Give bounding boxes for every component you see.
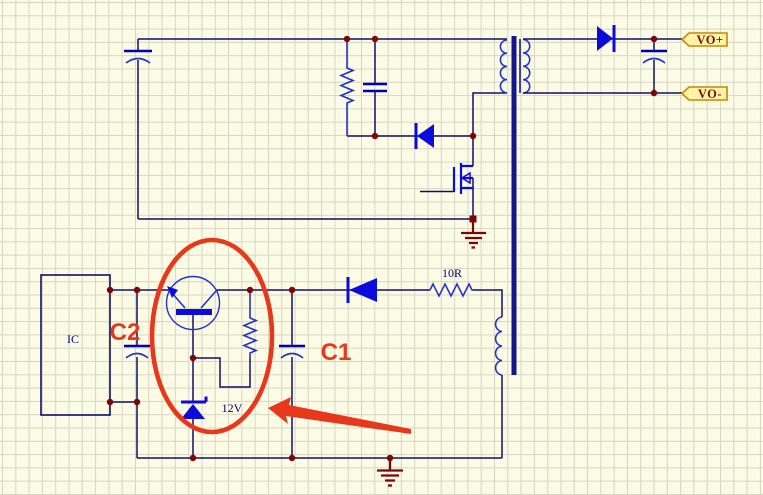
junction-dot bbox=[387, 455, 393, 461]
port-vo-minus-label: VO- bbox=[698, 87, 722, 101]
capacitor-c2 bbox=[124, 346, 150, 358]
port-vo-plus: VO+ bbox=[682, 33, 727, 47]
aux-ground-symbol bbox=[377, 458, 403, 486]
junction-dot bbox=[289, 455, 295, 461]
junction-dot bbox=[372, 36, 378, 42]
aux-resistor: 10R bbox=[430, 266, 473, 296]
junction-dot bbox=[651, 36, 657, 42]
annotation-c1-label: C1 bbox=[321, 339, 352, 366]
port-vo-plus-label: VO+ bbox=[696, 33, 723, 47]
junction-dot bbox=[107, 287, 113, 293]
ground-icon bbox=[461, 222, 486, 248]
schematic-canvas: VO+ VO- IC 12V bbox=[0, 0, 763, 495]
capacitor-c1 bbox=[279, 346, 305, 358]
output-capacitor bbox=[641, 39, 667, 93]
port-vo-minus: VO- bbox=[682, 87, 727, 101]
junction-dot bbox=[372, 133, 378, 139]
junction-dot bbox=[190, 455, 196, 461]
junction-dot bbox=[289, 287, 295, 293]
aux-diode bbox=[348, 277, 377, 303]
zener-voltage-label: 12V bbox=[222, 401, 243, 415]
junction-dot bbox=[134, 287, 140, 293]
bias-lower-route-wire bbox=[193, 358, 250, 387]
zener-diode: 12V bbox=[181, 397, 243, 420]
bias-resistor bbox=[244, 290, 256, 358]
junction-dot bbox=[134, 399, 140, 405]
transistor-collector-line bbox=[201, 291, 216, 308]
aux-resistor-zigzag bbox=[430, 284, 473, 296]
aux-resistor-label: 10R bbox=[442, 266, 462, 280]
clamp-diode-triangle bbox=[417, 124, 434, 148]
junction-square-dot bbox=[470, 216, 477, 223]
red-arrow-annotation-icon bbox=[268, 397, 411, 434]
zener-triangle bbox=[181, 404, 205, 419]
ic-box-label: IC bbox=[67, 332, 79, 346]
output-diode-triangle bbox=[597, 26, 613, 51]
aux-winding bbox=[496, 317, 502, 375]
primary-side-wiring bbox=[138, 39, 507, 219]
mosfet bbox=[454, 163, 473, 194]
transformer-core bbox=[512, 36, 517, 375]
junction-dot bbox=[651, 90, 657, 96]
primary-winding bbox=[500, 40, 507, 93]
highlight-ellipse-annotation bbox=[152, 240, 272, 432]
clamp-diode bbox=[416, 123, 434, 149]
snubber-capacitor-plates bbox=[363, 84, 387, 91]
junction-dot bbox=[190, 355, 196, 361]
primary-return-wire bbox=[473, 93, 507, 166]
ic-box: IC bbox=[41, 275, 110, 415]
transformer bbox=[496, 36, 530, 375]
junction-dot bbox=[344, 36, 350, 42]
secondary-side-wiring bbox=[523, 39, 683, 93]
snubber-capacitor bbox=[363, 39, 387, 136]
aux-diode-triangle bbox=[349, 278, 377, 302]
ground-icon bbox=[377, 458, 403, 486]
red-annotations: C2 C1 bbox=[110, 240, 411, 434]
annotation-c2-label: C2 bbox=[110, 319, 141, 346]
junction-dot bbox=[107, 399, 113, 405]
output-diode bbox=[597, 25, 614, 52]
junction-dot bbox=[470, 133, 476, 139]
junction-dot bbox=[247, 287, 253, 293]
aux-winding-feed-wire bbox=[473, 290, 502, 317]
mosfet-ground-symbol bbox=[461, 222, 486, 248]
circuit-schematic: VO+ VO- IC 12V bbox=[0, 0, 763, 495]
snubber-resistor bbox=[341, 39, 353, 136]
bias-resistor-zigzag bbox=[244, 290, 256, 358]
secondary-winding bbox=[523, 40, 530, 94]
snubber-resistor-zigzag bbox=[341, 39, 353, 136]
